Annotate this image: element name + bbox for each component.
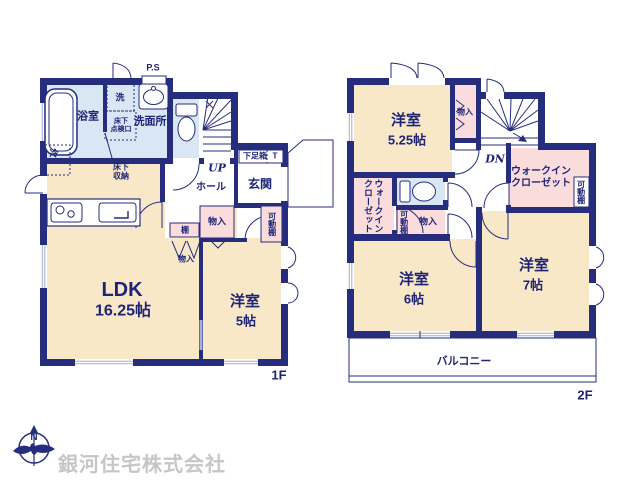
movable-shelf-mid-label: 可動棚 (399, 210, 408, 234)
room-bedroom525-size: 5.25帖 (388, 132, 426, 147)
toilet-icon-2f (400, 181, 436, 202)
movable-shelf-right-label: 可動棚 (576, 180, 585, 204)
entrance-porch (288, 140, 333, 207)
movable-shelf-label-1f: 可動棚 (267, 212, 276, 236)
stairs-up-label: UP (208, 163, 226, 176)
company-name: 銀河住宅株式会社 (58, 448, 226, 477)
closet-top-label: 物入 (457, 107, 473, 116)
closet-under-stairs-label: 物入 (178, 254, 194, 263)
shelf-label: 棚 (181, 225, 189, 234)
floor2-label: 2F (577, 387, 592, 402)
room-bedroom6-size: 6帖 (404, 291, 424, 306)
closet-hall-label: 物入 (208, 217, 226, 228)
closet-mid-label: 物入 (419, 217, 437, 228)
wic-left-label: ウォークイン クローゼット (363, 179, 384, 233)
floor-plan-drawing: N (0, 0, 640, 480)
compass-north-label: N (30, 432, 37, 443)
room-bedroom7-size: 7帖 (523, 277, 543, 292)
room-bedroom5-label: 洋室 (230, 293, 260, 311)
room-hall-label: ホール (196, 182, 226, 194)
toilet-icon-1f (176, 104, 197, 141)
wic-right-label: ウォークイン クローゼット (511, 166, 571, 190)
wash-basin-icon (139, 84, 168, 109)
room-ldk-size: 16.25帖 (95, 303, 151, 322)
room-washroom-label: 洗面所 (134, 116, 167, 129)
shoe-box-t-label: T (273, 151, 278, 160)
compass-icon: N (13, 425, 55, 466)
stairs-2f (481, 99, 538, 145)
ps-label: P.S (146, 63, 159, 74)
room-bedroom5-size: 5帖 (236, 313, 256, 328)
fridge-label: 冷 (49, 149, 58, 160)
floor1-label: 1F (271, 367, 286, 382)
kitchen-counter-icon (47, 199, 140, 226)
floor-plan-page: N P.S 浴室 洗 洗面所 床下 点検口 冷 床下 収納 UP ホール 玄関 … (0, 0, 640, 480)
room-bathroom-label: 浴室 (77, 111, 99, 124)
balcony-label: バルコニー (437, 356, 492, 369)
room-ldk-label: LDK (101, 279, 142, 303)
room-bedroom7-label: 洋室 (519, 257, 549, 275)
stairs-down-label: DN (485, 154, 505, 167)
laundry-label: 洗 (115, 93, 124, 104)
room-bedroom525-label: 洋室 (391, 112, 421, 130)
shoe-box-label: 下足箱 (243, 151, 267, 160)
room-entrance-label: 玄関 (248, 177, 272, 191)
underfloor-storage-label: 床下 収納 (113, 163, 129, 182)
underfloor-access-label: 床下 点検口 (111, 118, 132, 135)
room-bedroom6-label: 洋室 (399, 271, 429, 289)
